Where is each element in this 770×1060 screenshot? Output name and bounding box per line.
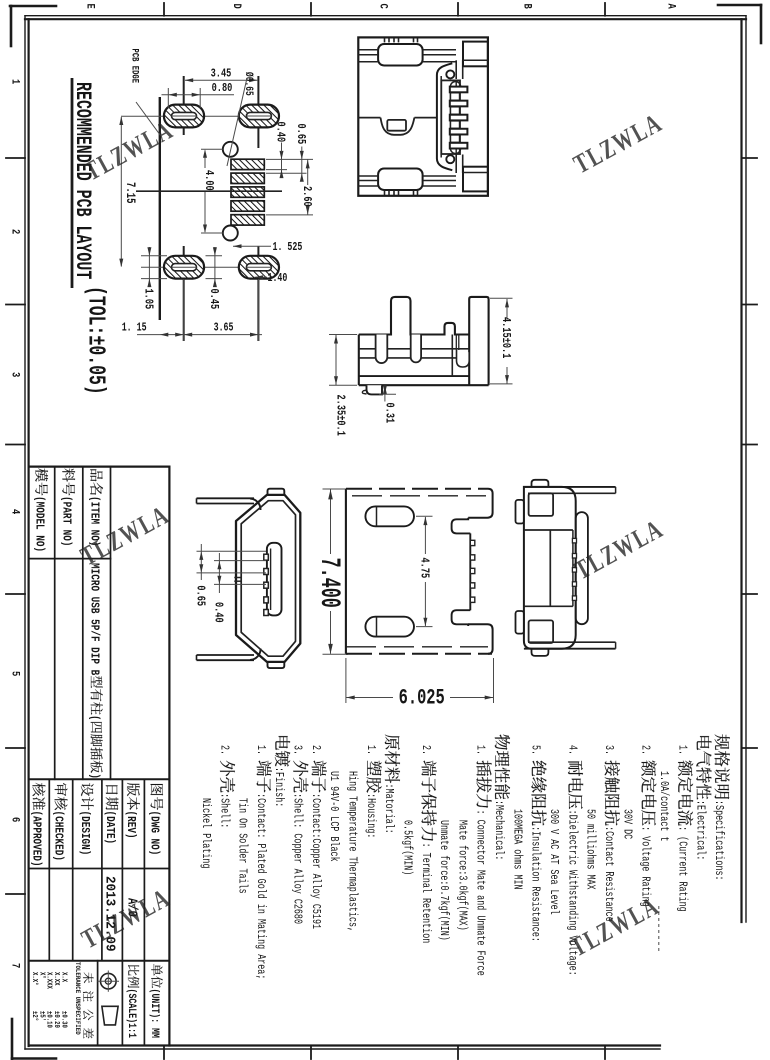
svg-text:0.40: 0.40 [211,602,225,623]
svg-text:5.: 5. [528,745,542,755]
svg-text:300 V AC AT Sea Level: 300 V AC AT Sea Level [546,809,560,915]
svg-text::Matorial:: :Matorial: [382,784,396,834]
svg-text:1.: 1. [473,745,487,755]
svg-text::Insulation Resistance:: :Insulation Resistance: [528,826,542,942]
svg-text:: (Current Rating: : (Current Rating [675,826,689,912]
svg-text:TOLERANCE UNSPECIFIED: TOLERANCE UNSPECIFIED [74,962,82,1035]
svg-text:1.05: 1.05 [141,289,155,310]
svg-text::Shell:: :Shell: [217,793,231,828]
svg-text:3: 3 [9,372,21,377]
svg-text::Shell: Copper Alloy C2680: :Shell: Copper Alloy C2680 [290,793,304,924]
svg-text:3.45: 3.45 [211,67,232,81]
svg-text::Electrical:: :Electrical: [693,800,707,860]
svg-text:2.: 2. [217,745,231,755]
svg-text:Nickel Plating: Nickel Plating [198,798,212,868]
svg-text:2.60: 2.60 [299,186,313,207]
svg-text:(DWG NO): (DWG NO) [147,811,160,856]
svg-text::Contact:Copper Alloy C5191: :Contact:Copper Alloy C5191 [308,793,322,929]
svg-text:: Terminal Retention: : Terminal Retention [418,843,432,944]
svg-text:1.0A/contact t: 1.0A/contact t [656,771,670,841]
svg-text:4.75: 4.75 [417,558,431,579]
svg-text:50 milliohms MAX: 50 milliohms MAX [583,809,597,890]
svg-text:): ) [87,773,100,779]
svg-text:100MEGA ohms MIN: 100MEGA ohms MIN [510,809,524,890]
svg-text:4.15±0.1: 4.15±0.1 [498,317,512,358]
svg-text:6.025: 6.025 [399,685,445,710]
svg-text:Unmate force:0.7kgf(MIN): Unmate force:0.7kgf(MIN) [436,820,450,941]
svg-text:2: 2 [9,229,21,234]
svg-text:1.40: 1.40 [268,273,288,286]
svg-text:2.: 2. [638,745,652,755]
svg-text:MICRO USB 5P/F DIP B: MICRO USB 5P/F DIP B [87,563,100,676]
svg-text:3.: 3. [601,745,615,755]
svg-text:0.5kgf(MIN): 0.5kgf(MIN) [400,820,414,875]
svg-text:Tin On Solder Tails: Tin On Solder Tails [235,798,249,894]
svg-text:(MODEL NO): (MODEL NO) [32,496,45,552]
svg-text:0.80: 0.80 [212,82,233,96]
svg-text:(: ( [87,715,100,721]
svg-text:3.: 3. [290,745,304,755]
svg-text:(TOL:±0.05): (TOL:±0.05) [81,286,108,395]
svg-text:0.65: 0.65 [293,124,307,145]
svg-text:1. 525: 1. 525 [273,242,303,255]
svg-text:7: 7 [9,963,21,968]
svg-text::Finish:: :Finish: [272,767,286,807]
svg-text:4.: 4. [565,745,579,755]
svg-text:6: 6 [9,817,21,822]
svg-text:1. 15: 1. 15 [122,322,147,335]
svg-text:5: 5 [9,671,21,676]
svg-text:0.45: 0.45 [206,289,220,310]
svg-text:(DESIGN): (DESIGN) [78,811,91,856]
svg-text:2.: 2. [308,745,322,755]
svg-text:0.65: 0.65 [193,585,207,606]
svg-text:Ø0.65: Ø0.65 [243,72,256,96]
svg-text:1: 1 [9,79,21,84]
svg-text:1.: 1. [253,745,267,755]
svg-text:4: 4 [9,509,21,514]
svg-text:U1 94V-0 LCP Black: U1 94V-0 LCP Black [327,771,341,862]
svg-text:7.15: 7.15 [122,182,136,204]
svg-text:2.: 2. [418,745,432,755]
svg-text:4.00: 4.00 [201,170,215,191]
svg-text:1.: 1. [675,745,689,755]
svg-text:B: B [521,4,533,9]
svg-text:Mate force:3.0kgf(MAX): Mate force:3.0kgf(MAX) [455,820,469,931]
svg-text::Contact Resistance: :Contact Resistance [601,826,615,922]
svg-text:(APPROVED): (APPROVED) [29,811,42,867]
svg-text::Mechanical:: :Mechanical: [491,800,505,860]
svg-text:(REV): (REV) [124,811,137,839]
svg-text:X.X°: X.X° [31,972,40,985]
svg-text::Contact: Plated Gold in Matin: :Contact: Plated Gold in Mating Area; [253,793,267,979]
svg-text:D: D [231,4,243,9]
svg-text:(SCALE)1:1: (SCALE)1:1 [125,989,137,1039]
svg-text:2.35±0.1: 2.35±0.1 [333,395,347,436]
svg-text:30V DC: 30V DC [620,809,634,839]
svg-text:E: E [84,4,96,9]
svg-text::Housing:: :Housing: [363,793,377,838]
svg-text:1.: 1. [363,745,377,755]
svg-text:PCB EDGE: PCB EDGE [129,49,140,84]
svg-text:C: C [377,4,389,9]
svg-text:0.31: 0.31 [382,403,396,424]
svg-text:(UNIT): MM: (UNIT): MM [149,989,161,1039]
svg-text:(PART NO): (PART NO) [59,496,72,547]
svg-text:3.65: 3.65 [214,322,234,335]
svg-text:0.40: 0.40 [273,122,287,143]
svg-text:(CHECKED): (CHECKED) [51,811,64,862]
svg-text::Specifications:: :Specifications: [711,800,725,881]
svg-text:7.400: 7.400 [314,558,346,608]
svg-text:: Connector Mate and Unmate Fo: : Connector Mate and Unmate Force [473,810,487,976]
svg-text:Hing Temperature Thermaplasti: Hing Temperature Thermaplastics, [345,771,359,932]
svg-text:A: A [665,4,677,9]
svg-text:(DATE): (DATE) [102,811,115,845]
svg-text:±2°: ±2° [31,1011,40,1021]
